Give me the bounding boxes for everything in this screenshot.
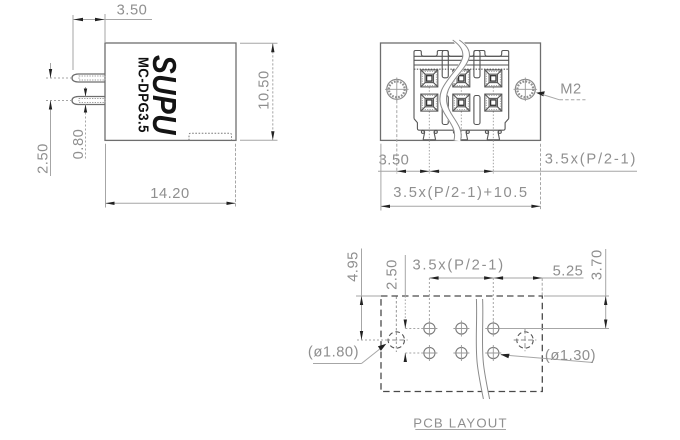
svg-text:3.70: 3.70: [590, 249, 606, 280]
svg-text:3.5x(P/2-1): 3.5x(P/2-1): [545, 152, 637, 168]
svg-text:2.50: 2.50: [36, 143, 52, 174]
svg-text:SUPU: SUPU: [146, 55, 183, 136]
svg-text:5.25: 5.25: [553, 264, 584, 280]
svg-text:3.5x(P/2-1): 3.5x(P/2-1): [412, 258, 504, 274]
svg-text:0.80: 0.80: [71, 129, 87, 160]
svg-text:M2: M2: [560, 82, 582, 98]
svg-text:MC-DPG3.5: MC-DPG3.5: [134, 57, 150, 133]
svg-text:3.5x(P/2-1)+10.5: 3.5x(P/2-1)+10.5: [393, 185, 528, 201]
svg-text:10.50: 10.50: [257, 70, 273, 110]
svg-text:(ø1.80): (ø1.80): [308, 345, 359, 361]
svg-text:2.50: 2.50: [385, 259, 401, 290]
svg-text:3.50: 3.50: [379, 153, 410, 169]
svg-text:4.95: 4.95: [346, 251, 362, 282]
svg-text:3.50: 3.50: [117, 3, 148, 19]
svg-text:14.20: 14.20: [150, 186, 190, 202]
svg-text:(ø1.30): (ø1.30): [545, 348, 596, 364]
svg-text:PCB LAYOUT: PCB LAYOUT: [413, 416, 508, 431]
